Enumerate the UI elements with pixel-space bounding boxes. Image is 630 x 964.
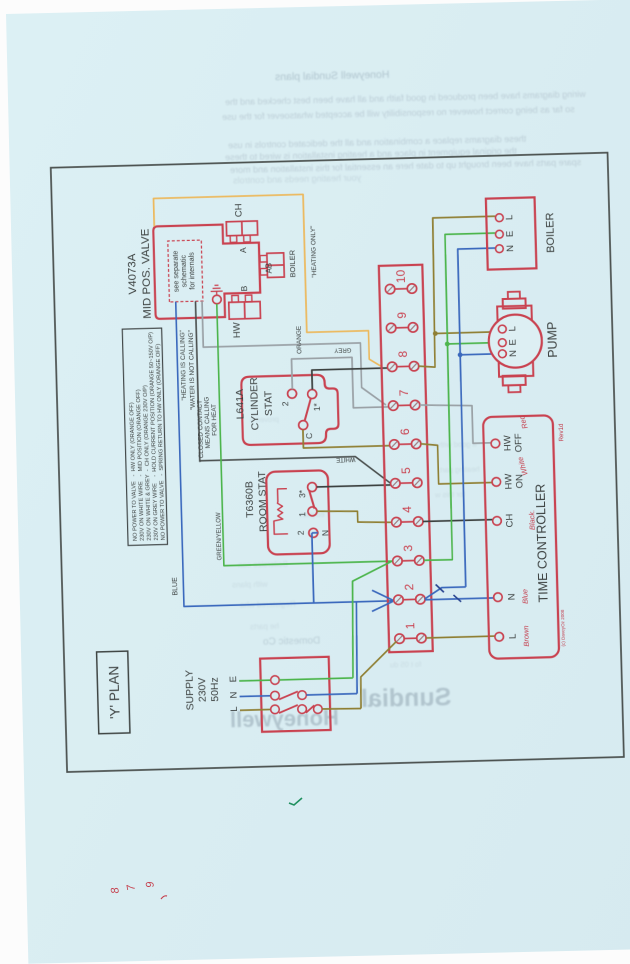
svg-text:8: 8 [109, 886, 122, 895]
svg-text:7: 7 [125, 883, 138, 892]
svg-text:9: 9 [144, 880, 157, 888]
